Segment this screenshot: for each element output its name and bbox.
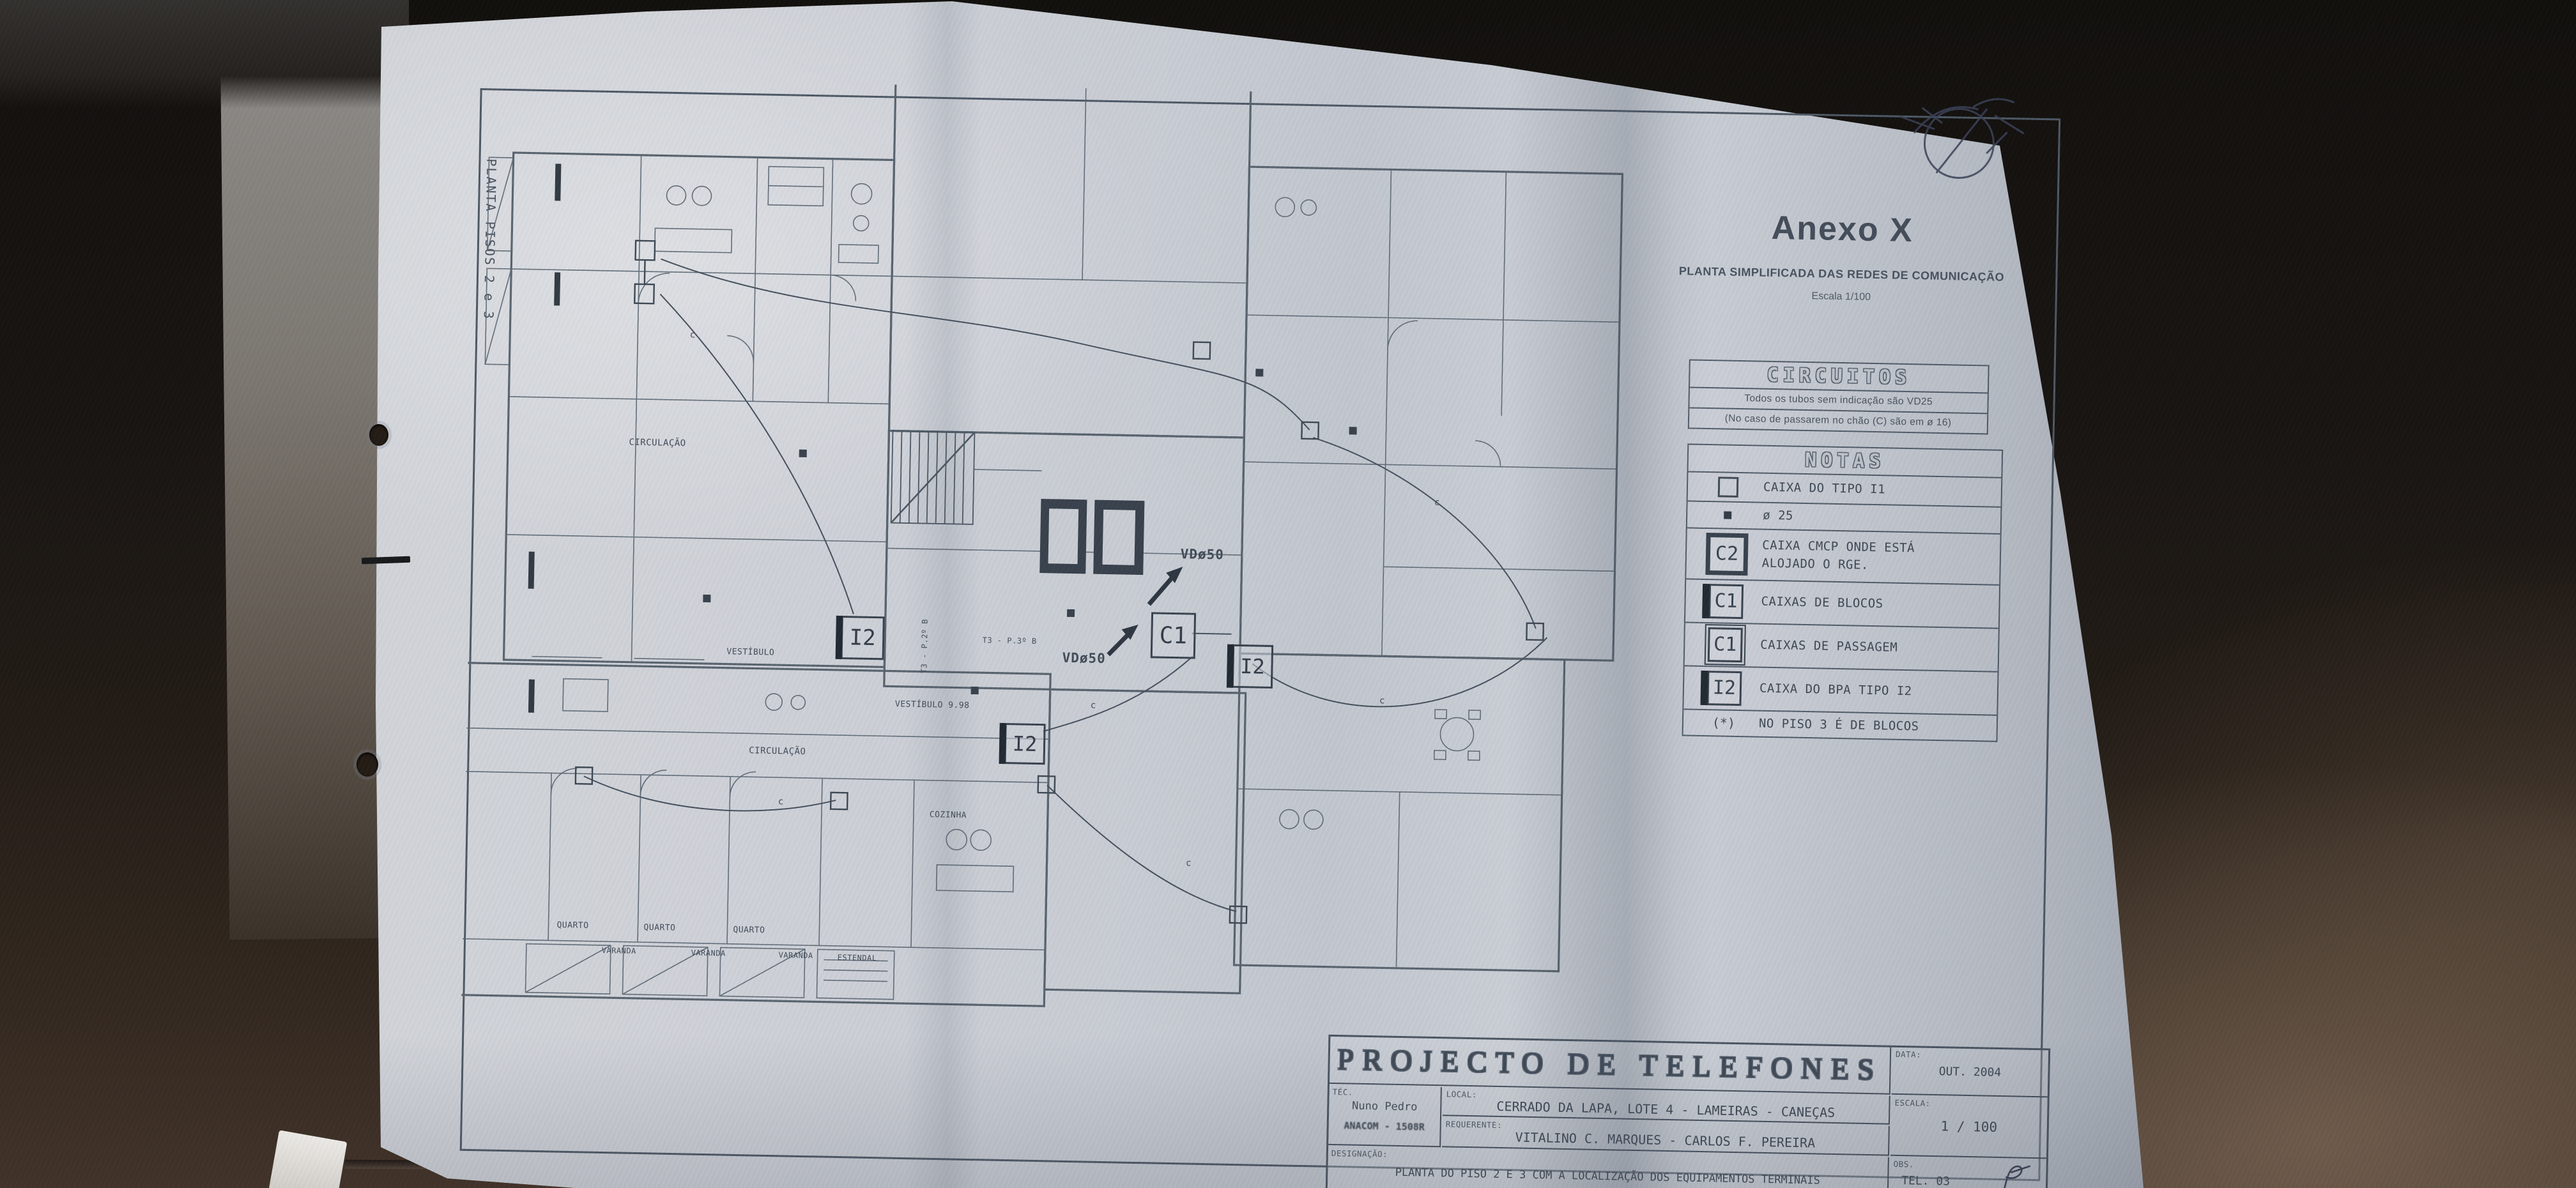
drawing-content: PLANTA PISOS 2 e 3 [459, 77, 2064, 1186]
punch-hole-bottom [356, 752, 378, 777]
legend-symbol-box-heavy: C2 [1691, 532, 1762, 575]
room-label: VESTÍBULO [726, 647, 774, 657]
legend-text: CAIXAS DE PASSAGEM [1760, 636, 1952, 657]
circuitos-box: CIRCUITOS Todos os tubos sem indicação s… [1688, 359, 1989, 434]
room-label: VESTÍBULO 9.98 [895, 699, 970, 710]
equipment-box-i2: I2 [1004, 723, 1045, 765]
seat-shadow-top-left [0, 0, 409, 109]
sq-open-icon [1718, 476, 1739, 498]
technician-name: Nuno Pedro [1329, 1099, 1440, 1114]
title-block: PROJECTO DE TELEFONES DATA: OUT. 2004 TÉ… [1326, 1035, 2051, 1188]
room-label: QUARTO [556, 920, 588, 931]
box-leftbar-icon: C1 [1708, 584, 1744, 619]
obs-value: TEL. 03 [1901, 1174, 1950, 1188]
legend-symbol-sq-fill [1692, 510, 1763, 519]
conduit-run-letter: c [1091, 701, 1096, 711]
notas-row-7: (*)NO PISO 3 É DE BLOCOS [1683, 710, 1997, 741]
under-surface-sheet [220, 25, 397, 940]
annex-heading: Anexo X PLANTA SIMPLIFICADA DAS REDES DE… [1648, 206, 2036, 307]
conduit-run-letter: c [1379, 696, 1385, 706]
notas-rows: CAIXA DO TIPO I1ø 25C2CAIXA CMCP ONDE ES… [1683, 472, 2002, 740]
date-value: OUT. 2004 [1892, 1047, 2048, 1097]
conduit-run-letter: c [778, 796, 784, 807]
room-label: QUARTO [643, 923, 675, 933]
paper-sliver-bottom-left [269, 1130, 348, 1188]
room-label: CIRCULAÇÃO [749, 745, 806, 757]
legend-symbol-box-dbl: C1 [1690, 627, 1761, 662]
conduit-size-label: VDø50 [1181, 546, 1225, 562]
box-dbl-icon: C1 [1708, 627, 1743, 662]
unit-type-label: T3 - P.3º B [983, 636, 1037, 646]
box-leftbar-icon: I2 [1706, 671, 1742, 706]
annex-title: Anexo X [1649, 206, 2035, 252]
conduit-size-label: VDø50 [1062, 650, 1106, 666]
legend-text: NO PISO 3 É DE BLOCOS [1759, 715, 1951, 736]
photo-of-telephone-project-drawing: PLANTA PISOS 2 e 3 [0, 0, 2576, 1188]
notas-row-6: I2CAIXA DO BPA TIPO I2 [1683, 666, 1997, 715]
legend-symbol-asterisk: (*) [1689, 715, 1759, 731]
room-label: VARANDA [602, 946, 636, 956]
legend-text: CAIXA DO TIPO I1 [1763, 479, 1955, 500]
legend-text: ø 25 [1763, 507, 1954, 528]
room-label: VARANDA [691, 948, 726, 958]
obs-label: OBS. [1894, 1159, 1914, 1169]
legend-symbol-box-leftbar: I2 [1689, 670, 1759, 706]
room-label: COZINHA [930, 810, 967, 820]
notas-row-4: C1CAIXAS DE BLOCOS [1685, 579, 1999, 628]
annex-subtitle: PLANTA SIMPLIFICADA DAS REDES DE COMUNIC… [1648, 264, 2034, 285]
notas-legend: NOTAS CAIXA DO TIPO I1ø 25C2CAIXA CMCP O… [1682, 443, 2004, 742]
conduit-run-letter: c [1434, 498, 1440, 508]
legend-text: CAIXA CMCP ONDE ESTÁ ALOJADO O RGE. [1761, 537, 1954, 576]
technician-label: TÉC. [1333, 1087, 1353, 1097]
legend-symbol-sq-open [1693, 476, 1764, 498]
signature-scribble [1876, 70, 2045, 195]
obs-initial-signature [1992, 1161, 2037, 1188]
notas-row-5: C1CAIXAS DE PASSAGEM [1685, 623, 1998, 672]
obs-cell: OBS. TEL. 03 [1890, 1157, 2046, 1188]
conduit-run-letter: c [690, 330, 696, 340]
escala-cell: ESCALA: 1 / 100 [1890, 1096, 2048, 1159]
legend-text: CAIXAS DE BLOCOS [1761, 593, 1952, 614]
conduit-run-letter: c [1186, 858, 1192, 868]
room-label: QUARTO [733, 925, 765, 935]
technician-cell: TÉC. Nuno Pedro ANACOM - 1508R [1328, 1085, 1442, 1147]
room-label: CIRCULAÇÃO [629, 438, 686, 449]
title-cell: PROJECTO DE TELEFONES [1330, 1037, 1891, 1095]
project-title: PROJECTO DE TELEFONES [1330, 1037, 1890, 1093]
unit-type-label: T3 - P.2º B [919, 619, 930, 673]
equipment-box-c1: C1 [1151, 612, 1196, 659]
room-label: VARANDA [779, 950, 813, 960]
box-heavy-icon: C2 [1705, 533, 1748, 575]
equipment-box-i2: I2 [1232, 644, 1273, 689]
sq-fill-icon [1724, 511, 1731, 519]
escala-value: 1 / 100 [1890, 1096, 2048, 1158]
legend-text: CAIXA DO BPA TIPO I2 [1759, 680, 1951, 701]
room-label: ESTENDAL [838, 953, 877, 963]
legend-symbol-box-leftbar: C1 [1690, 583, 1761, 619]
asterisk-icon: (*) [1712, 715, 1736, 731]
equipment-box-i2: I2 [841, 616, 885, 660]
notas-row-3: C2CAIXA CMCP ONDE ESTÁ ALOJADO O RGE. [1686, 528, 2000, 585]
technician-id: ANACOM - 1508R [1329, 1120, 1440, 1133]
date-cell: DATA: OUT. 2004 [1892, 1047, 2048, 1098]
punch-hole-top [369, 424, 388, 446]
